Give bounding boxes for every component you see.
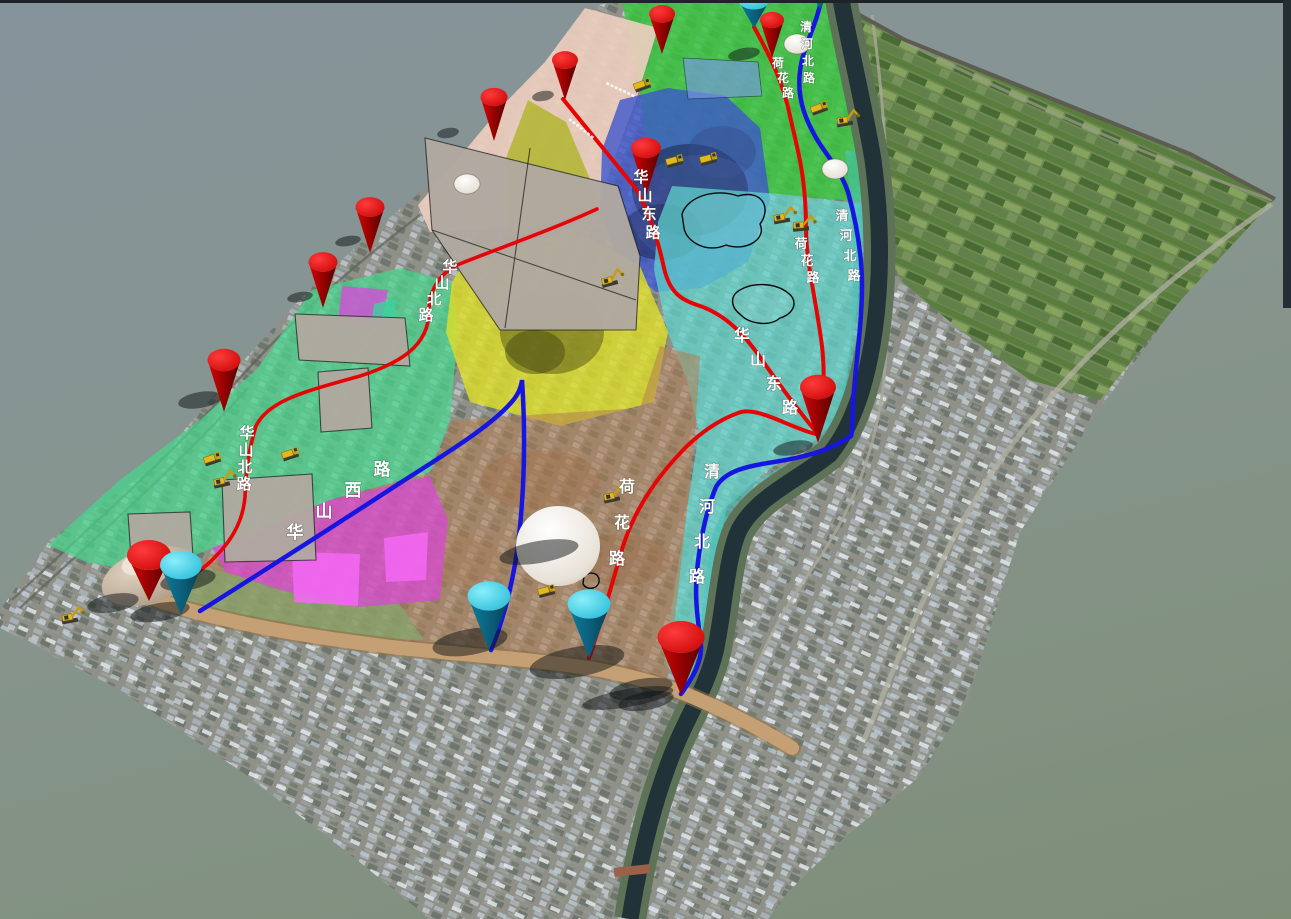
- white-mound: [454, 174, 480, 194]
- viewport-right-edge: [1283, 0, 1291, 308]
- cone-shadow: [436, 126, 459, 140]
- map-canvas[interactable]: 华山北路华山北路华山东路华山东路华山西路荷花路荷花路荷花路清河北路清河北路清河北…: [0, 0, 1291, 919]
- zone-pale-blue-parcel: [683, 58, 762, 99]
- 3d-viewport[interactable]: 华山北路华山北路华山东路华山东路华山西路荷花路荷花路荷花路清河北路清河北路清河北…: [0, 0, 1291, 919]
- white-mound: [822, 159, 848, 179]
- viewport-top-edge: [0, 0, 1291, 3]
